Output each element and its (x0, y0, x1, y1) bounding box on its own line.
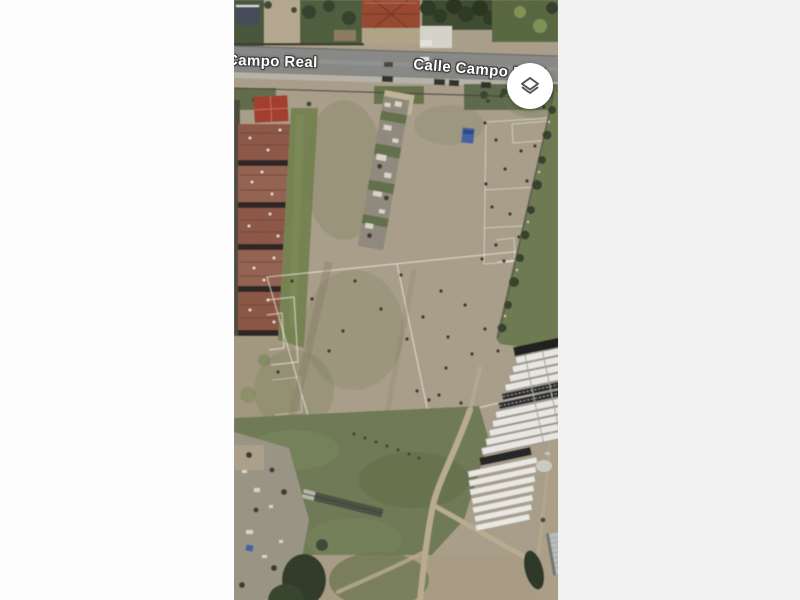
layers-button[interactable] (507, 63, 553, 109)
letterbox-right (558, 0, 800, 600)
letterbox-left (0, 0, 234, 600)
satellite-map[interactable]: Campo Real Calle Campo Real (234, 0, 558, 600)
layers-icon (518, 74, 542, 98)
